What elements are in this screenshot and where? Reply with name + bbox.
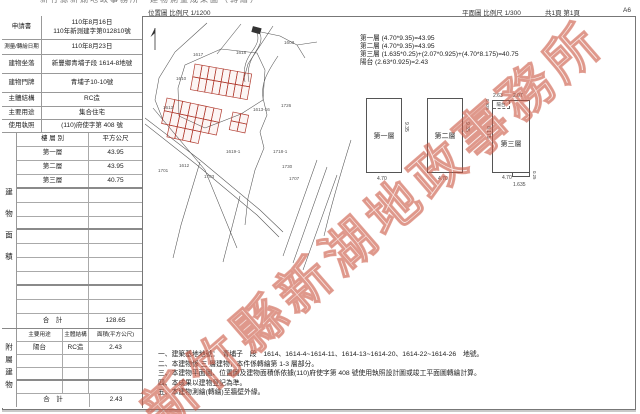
total-area: 128.65 xyxy=(89,314,142,328)
row-label: 建物門牌 xyxy=(2,74,42,92)
empty-row xyxy=(17,286,142,300)
floor-plan-3-label: 第三層 xyxy=(501,139,522,149)
row-label: 主體結構 xyxy=(2,93,42,106)
area-column-header: 面積(平方公尺) xyxy=(89,329,142,341)
table-row: 使用執照 (110)府使字第 408 號 xyxy=(2,120,142,133)
table-row: 第一層 43.95 xyxy=(17,147,142,161)
table-row: 第二層 43.95 xyxy=(17,161,142,175)
row-label: 測量/轉繪日期 xyxy=(2,40,42,54)
floor-area: 43.95 xyxy=(89,161,142,174)
floor-plan-1-width-dim: 4.70 xyxy=(377,176,387,182)
area-column-header: 平方公尺 xyxy=(89,133,142,146)
empty-row xyxy=(17,272,142,286)
annex-rows: 主要用途 主體結構 面積(平方公尺) 陽台 RC造 2.43 合 計 2.43 xyxy=(17,329,142,407)
main-structure: RC造 xyxy=(42,93,142,106)
table-row: 主體結構 RC造 xyxy=(2,93,142,107)
calc-line: 第三層 (1.635*0.25)+(2.07*0.925)+(4.70*8.17… xyxy=(360,51,519,59)
paper-size-label: A6 xyxy=(623,7,631,14)
table-row: 第三層 40.75 xyxy=(17,175,142,189)
notes-section: 一、建築基地地號： 青埔子 段 1614、1614-4~1614-11、1614… xyxy=(158,350,628,398)
parcel-label: 1618 xyxy=(236,50,247,55)
floor-plan-3-width-dim: 4.70 xyxy=(502,175,512,181)
parcel-label: 1613-16 xyxy=(253,107,270,112)
table-row: 建物坐落 新豐鄉青埔子段 1614-8地號 xyxy=(2,55,142,74)
row-label: 建物坐落 xyxy=(2,55,42,73)
floor-plan-2-label: 第二層 xyxy=(435,131,456,141)
calc-line: 第二層 (4.70*9.35)=43.95 xyxy=(360,43,519,51)
building-block-small xyxy=(229,112,248,133)
floor-column-header: 樓 層 別 xyxy=(17,133,89,146)
note-line: 一、建築基地地號： 青埔子 段 1614、1614-4~1614-11、1614… xyxy=(158,350,628,360)
parcel-label: 1718-1 xyxy=(273,149,288,154)
building-cluster-upper xyxy=(190,64,251,100)
parcel-label: 1707 xyxy=(289,176,300,181)
balcony-label: 陽台 xyxy=(497,102,506,108)
floor-plan-1-label: 第一層 xyxy=(374,131,395,141)
main-use: 集合住宅 xyxy=(42,107,142,119)
floor-plan-3-balcony: 陽台 xyxy=(493,101,510,109)
area-calculations: 第一層 (4.70*9.35)=43.95 第二層 (4.70*9.35)=43… xyxy=(360,35,519,67)
floor-plan-3-topdim-2: 2.07 xyxy=(513,93,523,99)
note-line: 四、本成果以建物登記為準。 xyxy=(158,379,628,389)
note-line: 二、本建物係 三 層建物，本件係轉繪第 1-3 層部分。 xyxy=(158,360,628,370)
parcel-label: 1610 xyxy=(176,76,187,81)
parcel-label: 1730 xyxy=(282,164,293,169)
building-area-section: 建物面積 樓 層 別 平方公尺 第一層 43.95 第二層 43.95 第三層 … xyxy=(2,133,142,329)
building-location: 新豐鄉青埔子段 1614-8地號 xyxy=(42,55,142,73)
annex-section: 附屬建物 主要用途 主體結構 面積(平方公尺) 陽台 RC造 2.43 合 計 … xyxy=(2,329,142,407)
info-table: 申請書 110年8月16日 110年新測建字第012810號 測量/轉繪日期 1… xyxy=(2,16,143,408)
clipped-header-text: 新竹縣新湖地政事務所 建物測量成果圖（轉繪） xyxy=(0,0,640,5)
row-label: 申請書 xyxy=(2,16,42,39)
annex-area: 2.43 xyxy=(89,342,142,354)
clipped-print-header: 新竹縣新湖地政事務所 建物測量成果圖（轉繪） xyxy=(0,0,640,5)
annex-structure: RC造 xyxy=(63,342,89,354)
road-end-structure xyxy=(251,26,261,34)
location-map: 1617 1618 1603 1610 1613 1613-16 1726 16… xyxy=(145,20,357,345)
building-area-section-label: 建物面積 xyxy=(2,133,17,328)
parcel-label: 1612 xyxy=(179,163,190,168)
floor-area: 43.95 xyxy=(89,147,142,160)
parcel-label: 1726 xyxy=(281,103,292,108)
floor-plan-3: 第三層 xyxy=(492,100,530,173)
structure-column-header: 主體結構 xyxy=(63,329,89,341)
empty-row xyxy=(17,244,142,258)
empty-row xyxy=(17,230,142,244)
floor-plan-1-height-dim: 9.35 xyxy=(403,122,409,132)
table-header-row: 樓 層 別 平方公尺 xyxy=(17,133,142,147)
survey-document-page: 新竹縣新湖地政事務所 建物測量成果圖（轉繪） 位置圖 比例尺 1/1200 平面… xyxy=(0,0,640,414)
floor-plan-1: 第一層 xyxy=(366,98,402,173)
floor-area: 40.75 xyxy=(89,175,142,187)
total-label: 合 計 xyxy=(17,394,90,407)
total-area: 2.43 xyxy=(90,394,142,407)
table-row: 申請書 110年8月16日 110年新測建字第012810號 xyxy=(2,16,142,40)
table-row: 測量/轉繪日期 110年8月23日 xyxy=(2,40,142,55)
parcel-label: 1617 xyxy=(193,52,204,57)
floor-plan-3-balcony-depth-dim: 0.925 xyxy=(485,99,490,110)
parcel-label: 1701 xyxy=(158,168,169,173)
parcel-boundaries xyxy=(145,23,351,270)
parcel-label: 1703 xyxy=(204,174,215,179)
floor-name: 第二層 xyxy=(17,161,89,174)
total-row: 合 計 2.43 xyxy=(17,394,142,407)
row-label: 使用執照 xyxy=(2,120,42,132)
floor-name: 第三層 xyxy=(17,175,89,187)
floor-plan-3-notch xyxy=(512,172,530,177)
table-row: 建物門牌 青埔子10-10號 xyxy=(2,74,142,93)
use-column-header: 主要用途 xyxy=(17,329,63,341)
total-row: 合 計 128.65 xyxy=(17,314,142,328)
building-area-rows: 樓 層 別 平方公尺 第一層 43.95 第二層 43.95 第三層 40.75 xyxy=(17,133,142,328)
annex-section-label: 附屬建物 xyxy=(2,329,17,407)
empty-row xyxy=(17,368,142,381)
table-row: 主要用途 集合住宅 xyxy=(2,107,142,120)
floor-plan-3-height-dim: 8.175 xyxy=(485,126,491,139)
empty-row xyxy=(17,355,142,368)
application-number: 110年新測建字第012810號 xyxy=(53,28,131,36)
calc-line: 陽台 (2.63*0.925)=2.43 xyxy=(360,59,519,67)
empty-row xyxy=(17,189,142,203)
parcel-label: 1603 xyxy=(284,40,295,45)
parcel-label: 1613 xyxy=(163,105,174,110)
survey-date: 110年8月23日 xyxy=(42,40,142,54)
application-date: 110年8月16日 xyxy=(72,19,113,27)
floor-plan-3-notch-depth-dim: 0.25 xyxy=(532,171,537,179)
floor-plan-2-height-dim: 9.35 xyxy=(464,122,470,132)
empty-row xyxy=(17,217,142,231)
calc-line: 第一層 (4.70*9.35)=43.95 xyxy=(360,35,519,43)
total-label: 合 計 xyxy=(17,314,89,328)
floor-plan-2-width-dim: 4.70 xyxy=(438,176,448,182)
parcel-label: 1619-1 xyxy=(226,149,241,154)
floor-name: 第一層 xyxy=(17,147,89,160)
building-address: 青埔子10-10號 xyxy=(42,74,142,92)
annex-use: 陽台 xyxy=(17,342,63,354)
table-row: 陽台 RC造 2.43 xyxy=(17,342,142,355)
note-line: 五、本建物測繪(轉繪)至牆壁外緣。 xyxy=(158,388,628,398)
note-line: 三、本建物平面圖、位置圖及建物面積係依據(110)府使字第 408 號使用執照設… xyxy=(158,369,628,379)
floor-plan-3-topdim-1: 2.63 xyxy=(493,93,503,99)
floor-plan-2: 第二層 xyxy=(427,98,463,173)
north-arrow-icon xyxy=(151,28,156,50)
empty-row xyxy=(17,381,142,394)
row-value: 110年8月16日 110年新測建字第012810號 xyxy=(42,16,142,39)
empty-row xyxy=(17,203,142,217)
row-label: 主要用途 xyxy=(2,107,42,119)
floor-plan-3-notch-width-dim: 1.635 xyxy=(513,182,526,188)
empty-row xyxy=(17,258,142,272)
table-header-row: 主要用途 主體結構 面積(平方公尺) xyxy=(17,329,142,342)
use-permit-number: (110)府使字第 408 號 xyxy=(42,120,142,132)
empty-row xyxy=(17,300,142,314)
